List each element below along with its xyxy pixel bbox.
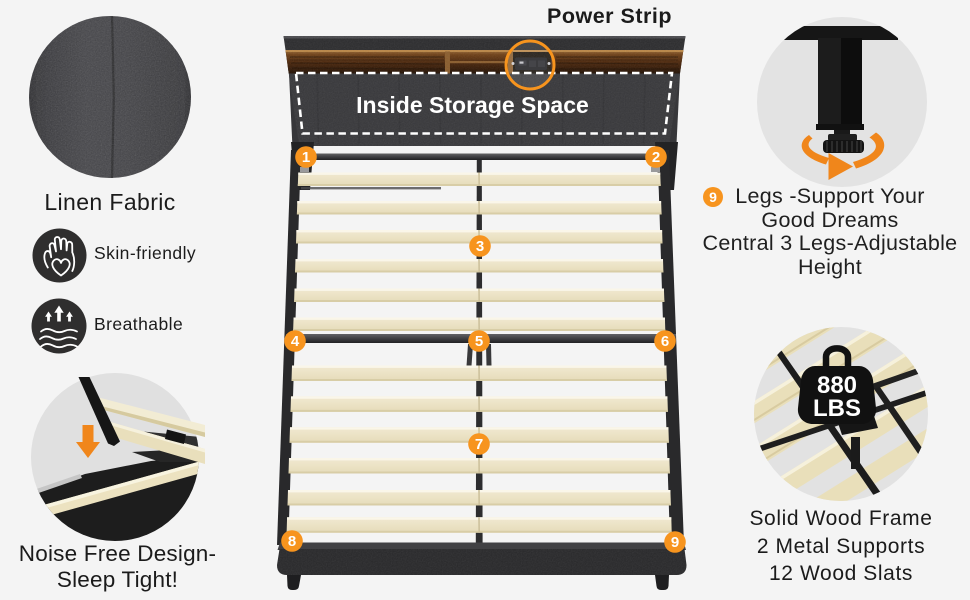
svg-text:8: 8 [288, 533, 296, 550]
svg-text:2: 2 [652, 149, 660, 166]
svg-text:3: 3 [476, 238, 484, 255]
svg-text:7: 7 [475, 436, 483, 453]
svg-text:1: 1 [302, 149, 310, 166]
svg-text:6: 6 [661, 333, 669, 350]
svg-text:4: 4 [291, 333, 300, 350]
svg-text:5: 5 [475, 333, 483, 350]
svg-text:9: 9 [671, 534, 679, 551]
svg-text:LBS: LBS [813, 395, 861, 422]
